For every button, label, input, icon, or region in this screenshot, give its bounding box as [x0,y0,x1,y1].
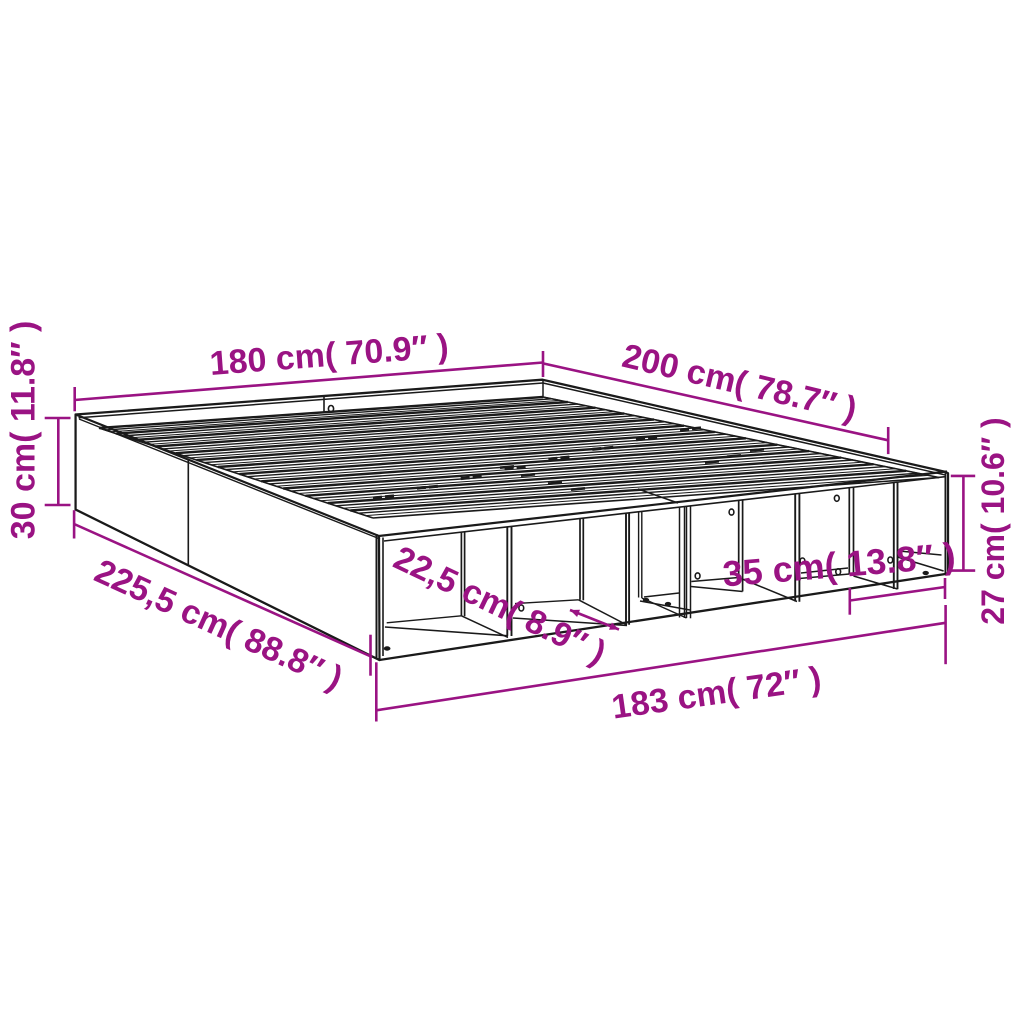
svg-text:30 cm( 11.8″ ): 30 cm( 11.8″ ) [5,321,43,540]
svg-text:27 cm( 10.6″ ): 27 cm( 10.6″ ) [975,417,1011,624]
